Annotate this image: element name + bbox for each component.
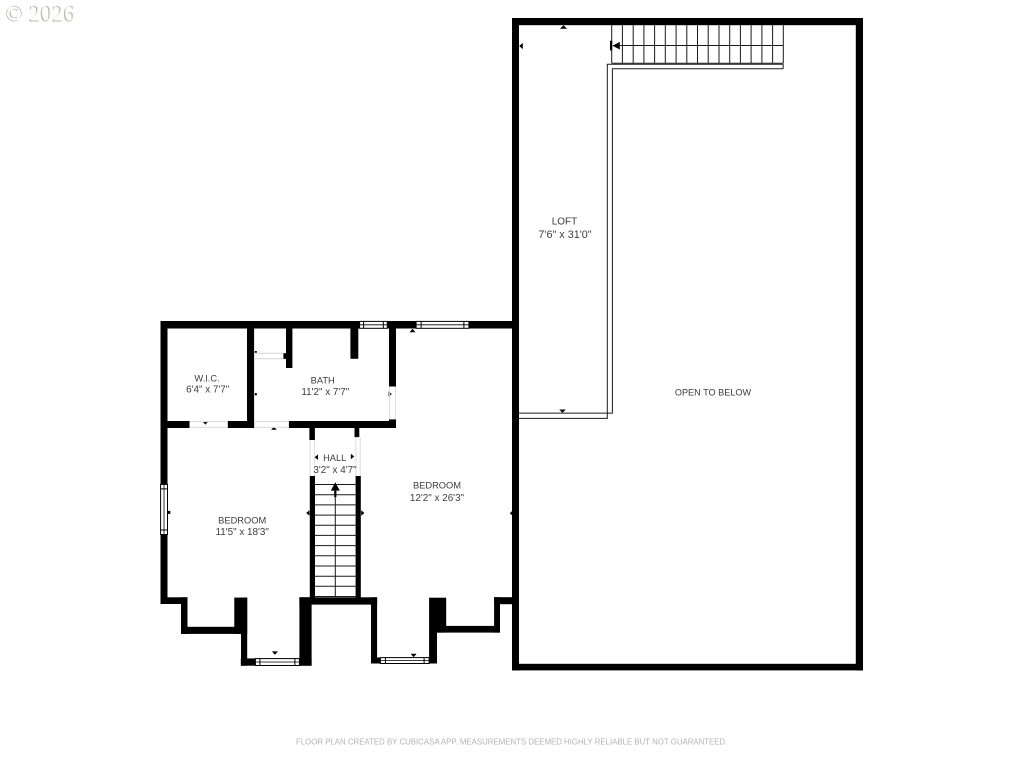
svg-text:LOFT: LOFT <box>552 217 578 228</box>
svg-text:© 2026: © 2026 <box>6 0 75 25</box>
svg-text:7'6" x 31'0": 7'6" x 31'0" <box>538 229 591 241</box>
svg-text:FLOOR PLAN CREATED BY CUBICASA: FLOOR PLAN CREATED BY CUBICASA APP. MEAS… <box>296 737 727 746</box>
svg-text:3'2" x 4'7": 3'2" x 4'7" <box>313 465 357 476</box>
svg-text:BEDROOM: BEDROOM <box>413 480 461 490</box>
svg-text:HALL: HALL <box>323 453 346 463</box>
svg-text:11'2" x 7'7": 11'2" x 7'7" <box>301 387 349 398</box>
svg-text:12'2" x 26'3": 12'2" x 26'3" <box>410 493 465 504</box>
svg-text:BATH: BATH <box>311 375 335 385</box>
svg-text:BEDROOM: BEDROOM <box>218 515 266 525</box>
svg-text:6'4" x 7'7": 6'4" x 7'7" <box>186 385 230 396</box>
svg-text:11'5" x 18'3": 11'5" x 18'3" <box>215 527 269 538</box>
svg-text:W.I.C.: W.I.C. <box>194 374 219 384</box>
svg-text:OPEN TO BELOW: OPEN TO BELOW <box>675 388 752 398</box>
